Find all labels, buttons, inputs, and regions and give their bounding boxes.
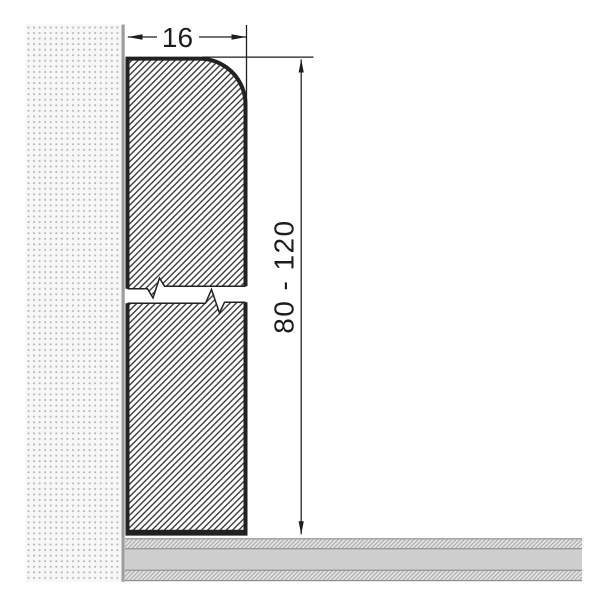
svg-text:80 - 120: 80 - 120	[269, 219, 300, 333]
svg-text:16: 16	[162, 22, 193, 53]
